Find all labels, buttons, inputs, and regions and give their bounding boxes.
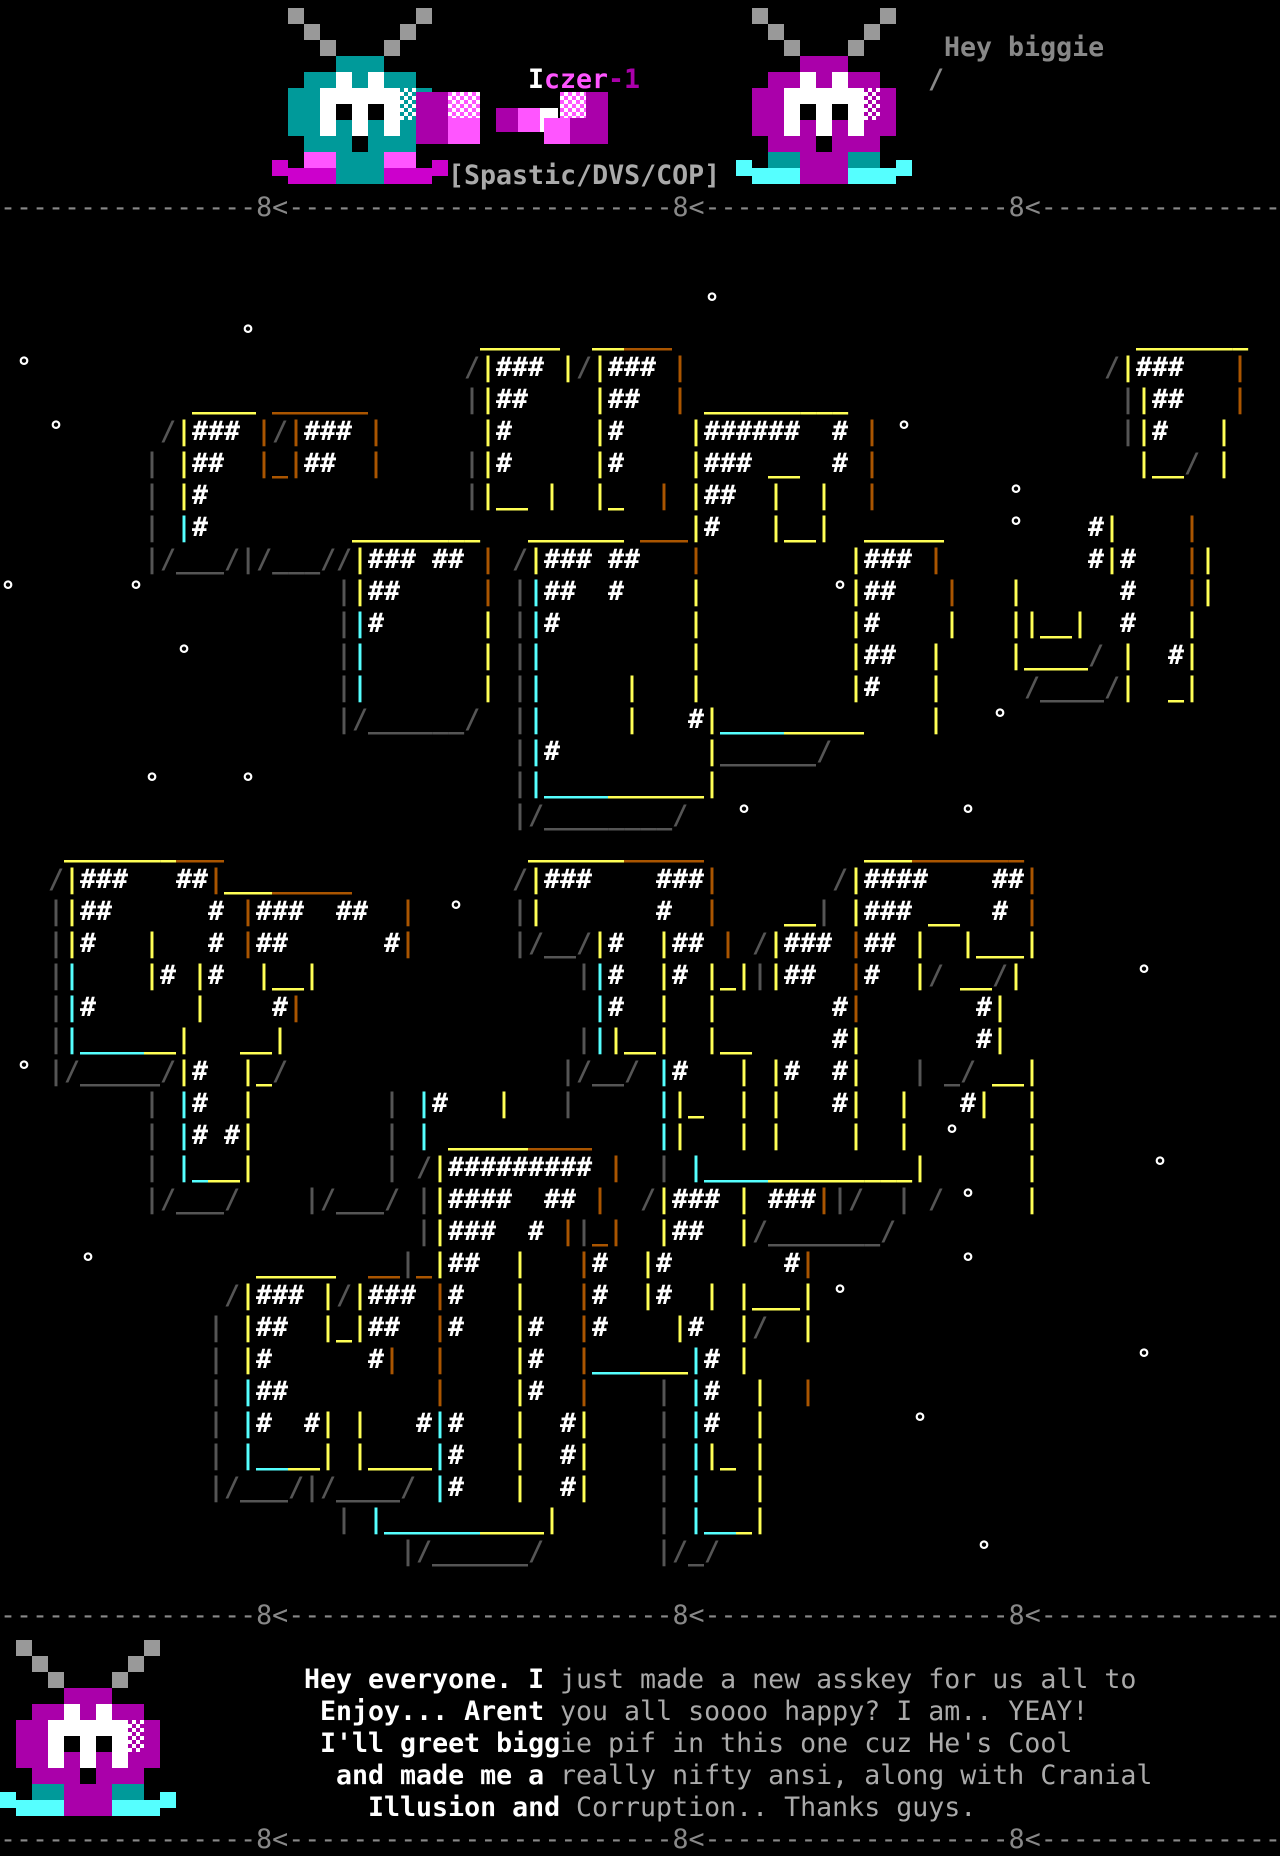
art-segment: # (80, 928, 96, 960)
art-segment: ° (0, 576, 16, 608)
art-segment: ° (128, 576, 144, 608)
art-segment: | (1136, 416, 1152, 448)
art-segment: | (320, 1408, 336, 1440)
art-segment: | (688, 1440, 704, 1472)
art-segment: _______ (912, 832, 1024, 864)
art-segment: | (64, 1024, 80, 1056)
art-segment: | (736, 960, 752, 992)
art-segment: | (800, 1280, 816, 1312)
art-segment: ### (672, 1184, 720, 1216)
art-segment: | (240, 1344, 256, 1376)
art-segment: ° (80, 1248, 96, 1280)
art-segment: # (592, 1312, 608, 1344)
creature-pixel (400, 136, 416, 152)
art-segment: _____ (864, 512, 944, 544)
art-segment: __ (928, 896, 960, 928)
art-segment: ## (256, 928, 288, 960)
logo-block (416, 92, 448, 118)
art-segment: | (480, 384, 496, 416)
art-segment: | (688, 1408, 704, 1440)
art-segment: | (528, 768, 544, 800)
art-segment: | (848, 576, 864, 608)
art-segment: | (528, 576, 544, 608)
art-segment: | (592, 960, 608, 992)
art-segment: | (368, 448, 384, 480)
logo-block (448, 92, 480, 118)
art-segment: | (768, 1056, 784, 1088)
art-segment: ° (976, 1536, 992, 1568)
art-segment: | (144, 448, 160, 480)
creature-pixel (368, 104, 384, 120)
art-segment: | (1024, 1088, 1040, 1120)
art-segment: / (704, 1536, 720, 1568)
hey-biggie-label: Hey biggie (944, 32, 1104, 64)
art-segment: | (192, 992, 208, 1024)
alien-creature-sprite (0, 1640, 176, 1824)
art-segment: ___ (240, 1472, 288, 1504)
art-segment: | (544, 1504, 560, 1536)
creature-pixel (368, 136, 384, 152)
creature-pixel (96, 1768, 112, 1784)
creature-pixel (800, 152, 816, 168)
art-segment: | (800, 1312, 816, 1344)
art-segment: | (1136, 448, 1152, 480)
art-segment: | (704, 768, 720, 800)
art-segment: ### (304, 416, 352, 448)
creature-pixel (880, 88, 896, 104)
art-segment: / (848, 1184, 864, 1216)
art-segment: | (768, 1088, 784, 1120)
art-segment: # (704, 1344, 720, 1376)
art-segment: | (688, 672, 704, 704)
art-segment: | (512, 672, 528, 704)
art-segment: | (512, 576, 528, 608)
art-segment: | (576, 1248, 592, 1280)
art-segment: / (992, 960, 1008, 992)
art-segment: | (240, 1056, 256, 1088)
art-segment: | (48, 928, 64, 960)
creature-pixel (800, 120, 816, 136)
art-segment: / (400, 1472, 416, 1504)
art-segment: | (848, 608, 864, 640)
creature-pixel (768, 88, 784, 104)
art-segment: ____ (368, 1440, 432, 1472)
creature-pixel (48, 1752, 64, 1768)
creature-pixel (832, 152, 848, 168)
art-segment: # (832, 992, 848, 1024)
art-segment: # (704, 1376, 720, 1408)
art-segment: | (480, 544, 496, 576)
art-segment: ## (304, 448, 336, 480)
art-segment: ° (736, 800, 752, 832)
logo-block (416, 118, 448, 144)
creature-pixel (384, 152, 400, 168)
art-segment: / (640, 1184, 656, 1216)
art-segment: ### (544, 864, 592, 896)
art-segment: |/________/ (512, 800, 688, 832)
art-segment: | (512, 928, 528, 960)
art-segment: | (640, 1280, 656, 1312)
art-segment: | (240, 928, 256, 960)
art-segment: ### (784, 928, 832, 960)
creature-pixel (784, 136, 800, 152)
art-segment: | (896, 1184, 912, 1216)
art-segment: ## (608, 544, 640, 576)
art-segment: ### (448, 1216, 496, 1248)
art-segment: # (256, 1408, 272, 1440)
creature-pixel (880, 120, 896, 136)
art-segment: # (368, 608, 384, 640)
creature-pixel (368, 120, 384, 136)
creature-pixel (816, 88, 832, 104)
art-segment: _ (592, 1216, 608, 1248)
art-segment: | (48, 896, 64, 928)
art-segment: ° (1136, 960, 1152, 992)
art-segment: __ (704, 1504, 736, 1536)
creature-pixel (304, 136, 320, 152)
art-segment: | (576, 1440, 592, 1472)
art-segment: ### (368, 544, 416, 576)
art-segment: _______ (64, 832, 176, 864)
art-segment: ____ (704, 1152, 768, 1184)
art-segment: | (240, 1088, 256, 1120)
art-segment: | (656, 928, 672, 960)
art-segment: | (864, 448, 880, 480)
art-segment: | (208, 1408, 224, 1440)
creature-pixel (304, 88, 320, 104)
creature-pixel (816, 136, 832, 152)
art-segment: _ (736, 1504, 752, 1536)
art-segment: | (704, 736, 720, 768)
art-segment: | (1024, 1056, 1040, 1088)
scissor-divider-line: ----------------8<----------------------… (0, 1600, 1280, 1632)
art-segment: ### (368, 1280, 416, 1312)
art-segment: ### (704, 448, 752, 480)
creature-pixel (96, 1688, 112, 1704)
art-segment: | (176, 480, 192, 512)
art-segment: | (176, 1088, 192, 1120)
creature-pixel (384, 88, 400, 104)
art-segment: | (592, 992, 608, 1024)
art-segment: # (192, 480, 208, 512)
art-segment: # (864, 960, 880, 992)
creature-pixel (848, 72, 864, 88)
art-segment: | (432, 1376, 448, 1408)
creature-pixel (112, 1752, 128, 1768)
creature-pixel (64, 1688, 80, 1704)
creature-pixel (800, 168, 816, 184)
art-segment: | (240, 1152, 256, 1184)
art-segment: / (752, 928, 768, 960)
creature-pixel (752, 104, 768, 120)
art-segment: ### (656, 864, 704, 896)
art-segment: | (624, 672, 640, 704)
art-segment: # (560, 1408, 576, 1440)
art-segment: | (432, 1344, 448, 1376)
art-segment: | (64, 928, 80, 960)
art-segment: | (480, 448, 496, 480)
creature-side-foot-pixel (160, 1792, 176, 1808)
creature-pixel (848, 168, 864, 184)
art-segment: |_ (672, 1088, 704, 1120)
creature-pixel (832, 88, 848, 104)
art-segment: # (1168, 640, 1184, 672)
creature-pixel (848, 136, 864, 152)
creature-pixel (848, 40, 864, 56)
art-segment: | (1024, 896, 1040, 928)
art-segment: # (368, 1344, 384, 1376)
message-line-gray: really nifty ansi, along with Cranial (560, 1760, 1152, 1792)
creature-pixel (16, 1752, 32, 1768)
creature-pixel (80, 1800, 96, 1816)
art-segment: | (240, 1440, 256, 1472)
art-segment: __ (368, 1248, 400, 1280)
art-segment: | (688, 576, 704, 608)
art-segment: __ (768, 448, 800, 480)
art-segment: __ (288, 1440, 320, 1472)
creature-pixel (112, 1784, 128, 1800)
creature-pixel (144, 1640, 160, 1656)
art-segment: | (736, 1184, 752, 1216)
creature-pixel (96, 1704, 112, 1720)
creature-pixel (352, 168, 368, 184)
art-segment: # (448, 1312, 464, 1344)
creature-pixel (144, 1720, 160, 1736)
art-segment: | (480, 608, 496, 640)
creature-pixel (400, 88, 416, 104)
art-segment: # (976, 1024, 992, 1056)
art-segment: ______ (272, 384, 368, 416)
art-segment: | (912, 928, 928, 960)
art-segment: | (816, 480, 832, 512)
scissor-divider-line: ----------------8<----------------------… (0, 1824, 1280, 1856)
art-segment: | (624, 704, 640, 736)
creature-pixel (32, 1656, 48, 1672)
creature-pixel (288, 120, 304, 136)
art-segment: ___ (640, 1344, 688, 1376)
art-segment: # (1120, 608, 1136, 640)
art-segment: | (352, 1312, 368, 1344)
art-segment: ### (768, 1184, 816, 1216)
art-segment: ___ (176, 1184, 224, 1216)
creature-pixel (352, 104, 368, 120)
art-segment: __ (592, 1056, 624, 1088)
creature-side-foot-pixel (736, 160, 752, 176)
art-segment: / (1088, 640, 1104, 672)
creature-pixel (112, 1672, 128, 1688)
art-segment: | (560, 352, 576, 384)
art-segment: | (688, 480, 704, 512)
creature-pixel (800, 88, 816, 104)
art-segment: # (1088, 544, 1104, 576)
art-segment: / (272, 1056, 288, 1088)
creature-pixel (800, 56, 816, 72)
message-line-white: I'll greet bigg (320, 1728, 560, 1760)
creature-pixel (352, 72, 368, 88)
art-segment: ____ (720, 704, 784, 736)
art-segment: | (336, 1504, 352, 1536)
art-segment: _____ (80, 1056, 160, 1088)
art-segment: # (864, 672, 880, 704)
art-segment: | (256, 448, 272, 480)
art-segment: # (608, 576, 624, 608)
art-segment: | (1184, 512, 1200, 544)
art-segment: | (736, 1056, 752, 1088)
art-segment: | (240, 1312, 256, 1344)
art-segment: ___ (640, 512, 688, 544)
art-segment: _/ (944, 1056, 976, 1088)
message-line-gray: just made a new asskey for us all to (560, 1664, 1136, 1696)
creature-pixel (400, 104, 416, 120)
art-segment: | (432, 1312, 448, 1344)
creature-pixel (336, 152, 352, 168)
creature-pixel (32, 1736, 48, 1752)
art-segment: # (1120, 576, 1136, 608)
art-segment: | (928, 672, 944, 704)
art-segment: | (1104, 544, 1120, 576)
art-segment: # (80, 992, 96, 1024)
art-segment: | (368, 416, 384, 448)
creature-pixel (80, 1768, 96, 1784)
art-segment: _______ (1136, 320, 1248, 352)
scissor-divider-line: ----------------8<----------------------… (0, 192, 1280, 224)
art-segment: _ (192, 1152, 208, 1184)
art-segment: ## (192, 448, 224, 480)
art-segment: | (144, 960, 160, 992)
art-segment: ## (368, 1312, 400, 1344)
creature-pixel (864, 72, 880, 88)
creature-pixel (80, 1688, 96, 1704)
art-segment: | (944, 576, 960, 608)
art-segment: # (688, 704, 704, 736)
art-segment: ° (960, 800, 976, 832)
creature-pixel (304, 120, 320, 136)
art-segment: / (672, 1536, 688, 1568)
art-segment: ____ (480, 1504, 544, 1536)
art-segment: | (576, 1344, 592, 1376)
art-segment: | (848, 640, 864, 672)
art-segment: # (544, 736, 560, 768)
art-segment: | (432, 1440, 448, 1472)
art-segment: | (688, 1344, 704, 1376)
creature-pixel (96, 1800, 112, 1816)
creature-pixel (288, 104, 304, 120)
art-segment: ### (864, 544, 912, 576)
art-segment: | (432, 1216, 448, 1248)
creature-pixel (64, 1720, 80, 1736)
art-segment: ______ (608, 768, 704, 800)
creature-pixel (320, 88, 336, 104)
creature-pixel (32, 1752, 48, 1768)
creature-pixel (112, 1704, 128, 1720)
art-segment: ## (864, 576, 896, 608)
art-segment: | (480, 576, 496, 608)
iczer-1-title: czer (544, 64, 608, 96)
art-segment: | (720, 928, 736, 960)
creature-pixel (320, 136, 336, 152)
art-segment: _______ (768, 1216, 880, 1248)
art-segment: __ (240, 1024, 272, 1056)
art-segment: | (464, 480, 480, 512)
art-segment: # (784, 1056, 800, 1088)
creature-pixel (48, 1736, 64, 1752)
creature-pixel (864, 88, 880, 104)
art-segment: | (512, 608, 528, 640)
art-segment: / (752, 1312, 768, 1344)
art-segment: | (848, 864, 864, 896)
art-segment: ######### (448, 1152, 592, 1184)
art-segment: | (1200, 576, 1216, 608)
creature-pixel (768, 72, 784, 88)
creature-pixel (304, 168, 320, 184)
art-segment: | (352, 672, 368, 704)
art-segment: / (880, 1216, 896, 1248)
art-segment: | (752, 1504, 768, 1536)
alien-creature-sprite (736, 8, 912, 192)
art-segment: | (928, 640, 944, 672)
art-segment: ## (176, 864, 208, 896)
art-segment: # (304, 1408, 320, 1440)
art-segment: ## (864, 640, 896, 672)
creature-pixel (96, 1720, 112, 1736)
creature-pixel (400, 72, 416, 88)
art-segment: __ (272, 960, 304, 992)
art-segment: / (928, 1184, 944, 1216)
creature-pixel (864, 24, 880, 40)
art-segment: ### (544, 544, 592, 576)
art-segment: / (48, 864, 64, 896)
art-segment: | (528, 608, 544, 640)
art-segment: | (912, 1152, 928, 1184)
art-segment: ### (256, 896, 304, 928)
art-segment: # (992, 896, 1008, 928)
art-segment: | (320, 1280, 336, 1312)
art-segment: | (736, 1120, 752, 1152)
art-segment: | (496, 1088, 512, 1120)
art-segment: | (656, 1152, 672, 1184)
creature-pixel (16, 1736, 32, 1752)
art-segment: | (656, 960, 672, 992)
art-segment: # (1120, 544, 1136, 576)
art-segment: | (656, 1184, 672, 1216)
art-segment: _ (336, 1312, 352, 1344)
art-segment: | (176, 1152, 192, 1184)
creature-side-foot-pixel (432, 160, 448, 176)
art-segment: ## (1152, 384, 1184, 416)
art-segment: | (64, 864, 80, 896)
art-segment: _____ (256, 1248, 336, 1280)
art-segment: | (208, 1312, 224, 1344)
art-segment: / (224, 1184, 240, 1216)
message-line-gray: ie pif in this one cuz He's Cool (560, 1728, 1072, 1760)
art-segment: | (208, 1344, 224, 1376)
art-segment: | (768, 960, 784, 992)
art-segment: # (672, 1056, 688, 1088)
art-segment: # (192, 512, 208, 544)
art-segment: _ (688, 1536, 704, 1568)
art-segment: | (64, 896, 80, 928)
creature-side-foot-pixel (272, 160, 288, 176)
art-segment: # (608, 960, 624, 992)
logo-block (496, 108, 520, 132)
art-segment: __ (592, 320, 624, 352)
art-segment: | (768, 512, 784, 544)
creature-pixel (768, 104, 784, 120)
art-segment: | (144, 1120, 160, 1152)
art-segment: | (544, 480, 560, 512)
art-segment: | (656, 1376, 672, 1408)
art-segment: | (416, 1184, 432, 1216)
